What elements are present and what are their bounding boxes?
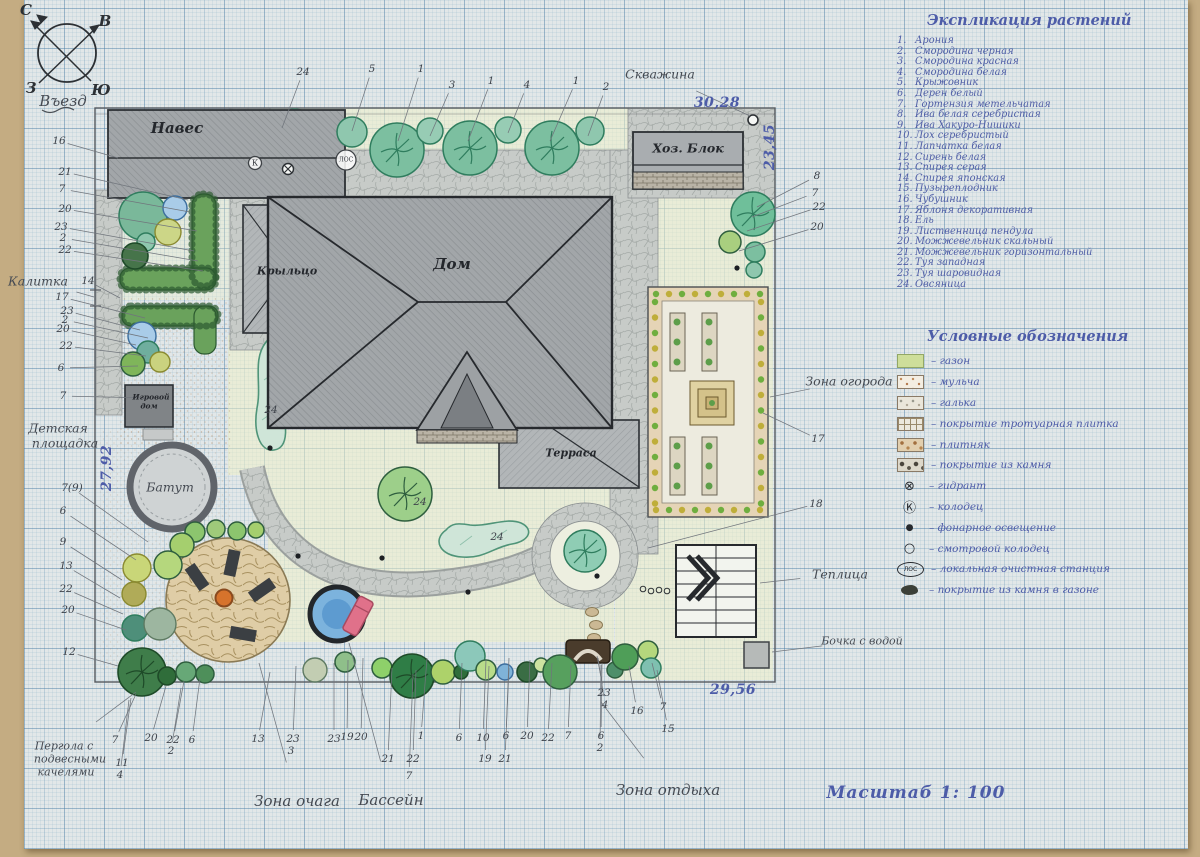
legend-item-label: мульча — [931, 376, 980, 388]
legend-item: Ⓚколодец — [897, 497, 1187, 518]
plant-list: Экспликация растений 1.Арония2.Смородина… — [897, 12, 1187, 289]
plant-list-item: 17.Яблоня декоративная — [897, 205, 1187, 216]
stone-swatch-icon — [897, 458, 924, 472]
vegetable-garden — [648, 287, 768, 517]
plant-list-item: 19.Лиственница пендула — [897, 226, 1187, 237]
terrace — [499, 420, 639, 488]
plant-list-item: 6.Дерен белый — [897, 88, 1187, 99]
legend-item-label: гидрант — [929, 480, 986, 492]
legend-item: ЛОСлокальная очистная станция — [897, 559, 1187, 580]
legend-item-label: покрытие из камня — [931, 459, 1051, 471]
hydrant-icon — [283, 164, 294, 175]
plant-list-item: 11.Лапчатка белая — [897, 141, 1187, 152]
fire-pit — [216, 590, 233, 607]
legend-item: плитняк — [897, 434, 1187, 455]
plant-list-item: 8.Ива белая серебристая — [897, 109, 1187, 120]
well-swatch-icon: Ⓚ — [897, 497, 922, 516]
plant-list-item: 22.Туя западная — [897, 257, 1187, 268]
plant-list-item: 18.Ель — [897, 215, 1187, 226]
plant-list-item: 4.Смородина белая — [897, 67, 1187, 78]
utility-block — [633, 132, 743, 189]
manhole-swatch-icon: ○ — [897, 541, 922, 556]
greenhouse — [676, 545, 756, 637]
plant-list-item: 24.Овсяница — [897, 279, 1187, 290]
legend-item: покрытие из камня в газоне — [897, 580, 1187, 601]
legend-item-label: галька — [931, 397, 976, 409]
plant-list-item: 3.Смородина красная — [897, 56, 1187, 67]
legend-item-label: локальная очистная станция — [931, 563, 1110, 575]
plant-list-item: 12.Сирень белая — [897, 152, 1187, 163]
plant-list-item: 16.Чубушник — [897, 194, 1187, 205]
legend-item: мульча — [897, 372, 1187, 393]
legend-item-label: колодец — [929, 501, 983, 513]
legend-item: газон — [897, 351, 1187, 372]
legend-item-label: плитняк — [931, 439, 990, 451]
well-icon — [249, 157, 262, 170]
legend-item: покрытие тротуарная плитка — [897, 413, 1187, 434]
entrance-underline — [42, 108, 74, 113]
plant-list-title: Экспликация растений — [927, 12, 1187, 29]
mulch-swatch-icon — [897, 375, 924, 389]
compass-rose — [31, 15, 99, 83]
legend-item-label: покрытие из камня в газоне — [929, 584, 1099, 596]
legend-item: покрытие из камня — [897, 455, 1187, 476]
legend-item-label: фонарное освещение — [929, 522, 1056, 534]
legend-item: ○смотровой колодец — [897, 538, 1187, 559]
symbols-legend: Условные обозначения газонмульчагалькапо… — [897, 328, 1187, 601]
grid-swatch-icon — [897, 417, 924, 431]
legend-title: Условные обозначения — [927, 328, 1187, 345]
pebble-swatch-icon — [897, 396, 924, 410]
plant-list-item: 14.Спирея японская — [897, 173, 1187, 184]
plant-list-item: 23.Туя шаровидная — [897, 268, 1187, 279]
plant-list-item: 15.Пузыреплодник — [897, 183, 1187, 194]
legend-item: галька — [897, 393, 1187, 414]
water-barrel — [744, 642, 769, 668]
legend-item-label: смотровой колодец — [929, 543, 1050, 555]
legend-item: ⊗гидрант — [897, 476, 1187, 497]
plant-list-item: 5.Крыжовник — [897, 77, 1187, 88]
plant-list-item: 21.Можжевельник горизонтальный — [897, 247, 1187, 258]
trampoline — [130, 445, 214, 529]
photo-background: 2451314128722201718162172023222141723220… — [0, 0, 1200, 857]
plant-list-item: 13.Спирея серая — [897, 162, 1187, 173]
manhole-icon — [748, 115, 758, 125]
plant-list-item: 1.Арония — [897, 35, 1187, 46]
los-swatch-icon: ЛОС — [897, 562, 924, 577]
plant-list-item: 7.Гортензия метельчатая — [897, 99, 1187, 110]
legend-item: ●фонарное освещение — [897, 517, 1187, 538]
los-station-icon — [336, 150, 356, 170]
stepping-stone — [586, 608, 599, 617]
plant-list-item: 10.Лох серебристый — [897, 130, 1187, 141]
plant-list-item: 2.Смородина черная — [897, 46, 1187, 57]
plant-list-item: 9.Ива Хакуро-Нишики — [897, 120, 1187, 131]
carport-naves — [108, 110, 345, 198]
blob-swatch-icon — [901, 585, 918, 595]
hydrant-swatch-icon: ⊗ — [897, 479, 922, 494]
flag-swatch-icon — [897, 438, 924, 452]
lawn-swatch-icon — [897, 354, 924, 368]
plant-list-item: 20.Можжевельник скальный — [897, 236, 1187, 247]
lamp-swatch-icon: ● — [897, 523, 922, 533]
legend-item-label: покрытие тротуарная плитка — [931, 418, 1119, 430]
legend-item-label: газон — [931, 355, 970, 367]
